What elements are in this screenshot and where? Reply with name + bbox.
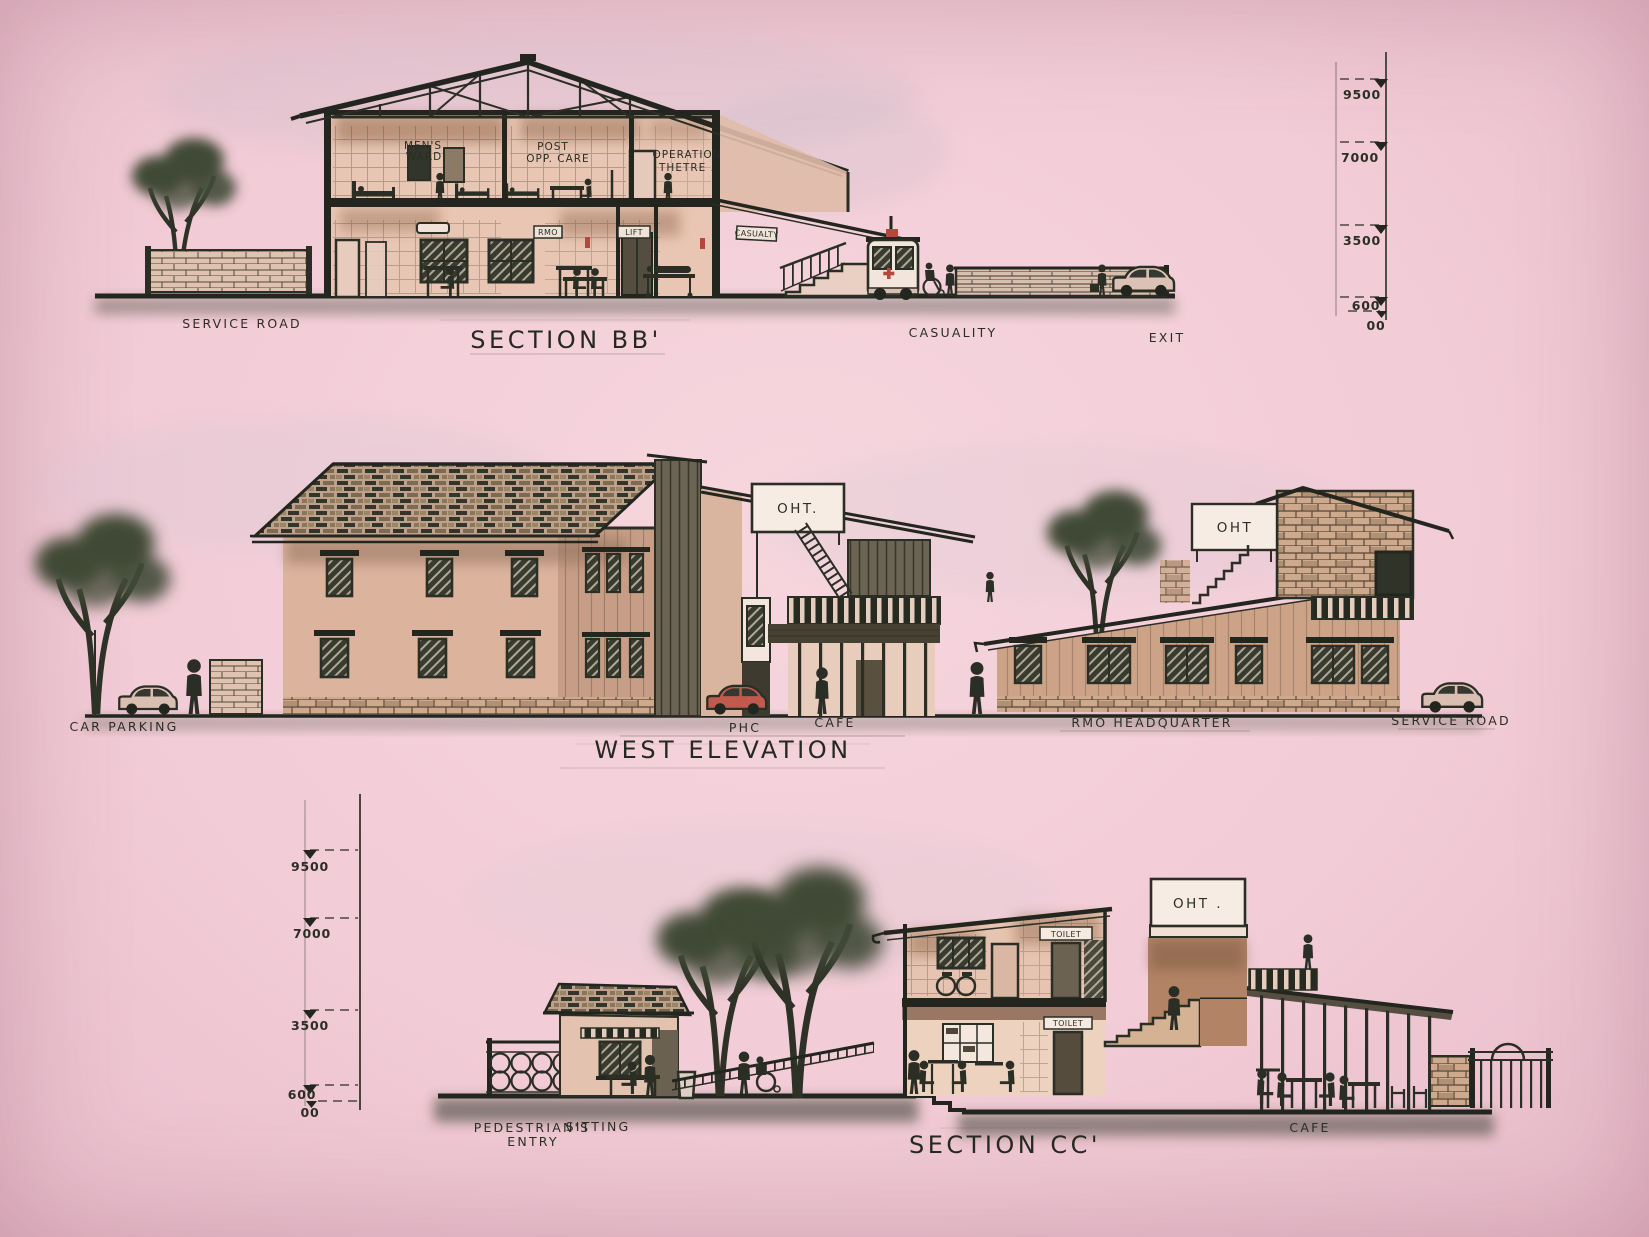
- terrace-railing: [1249, 969, 1317, 990]
- lift-sign-label: LIFT: [625, 228, 643, 237]
- service-road-label: SERVICE ROAD: [1391, 713, 1511, 728]
- rmo-headquarter-label: RMO HEADQUARTER: [1071, 715, 1232, 730]
- wheelchair-patient-group: [924, 263, 955, 296]
- dim-7000: 7000: [1341, 150, 1379, 165]
- cafe-label: CAFE: [1289, 1120, 1330, 1135]
- cc-section-building: TOILET TOILET: [873, 909, 1112, 1096]
- door: [366, 242, 386, 297]
- boundary-fence: [1468, 1044, 1553, 1108]
- cafe-label: CAFE: [814, 715, 855, 730]
- wheel: [874, 288, 886, 300]
- ground-steps: [916, 1096, 966, 1110]
- pedestrians-entry-label-line2: ENTRY: [507, 1134, 558, 1149]
- bench: [563, 277, 607, 281]
- ground-shadow: [95, 298, 1175, 314]
- oht-cc-label: OHT .: [1173, 896, 1223, 912]
- bag: [1090, 284, 1099, 292]
- door: [336, 240, 359, 297]
- post-op-label-line2: OPP. CARE: [526, 153, 589, 165]
- fire-extinguisher: [585, 237, 590, 248]
- plinth: [997, 696, 1400, 712]
- exit-label: EXIT: [1149, 330, 1186, 345]
- casuality-label: CASUALITY: [909, 325, 998, 340]
- toilet-door-upper: [1052, 943, 1080, 998]
- dim-600: 600: [288, 1087, 317, 1102]
- operation-theatre-label-line2: THETRE .: [658, 162, 715, 174]
- balcony-slats: [1312, 597, 1413, 619]
- casualty-signboard: CASUALTY: [734, 226, 778, 241]
- cc-cafe: [1247, 934, 1453, 1110]
- brick-compound-wall: [148, 250, 308, 292]
- dim-7000: 7000: [293, 926, 331, 941]
- mens-ward-label-line2: WARD: [406, 151, 442, 163]
- dim-3500: 3500: [1343, 233, 1381, 248]
- drawing-sheet: RMO LIFT MEN'S WARD POST OPP. CARE OPERA…: [0, 0, 1649, 1237]
- toilet-door-lower: [1054, 1032, 1082, 1094]
- patient-lying: [655, 266, 691, 273]
- wheelchair-wheel: [757, 1073, 775, 1091]
- section-bb-title: SECTION BB': [470, 326, 661, 354]
- upper-window: [938, 938, 984, 968]
- stair-tower: [655, 460, 701, 716]
- walking-person: [970, 662, 985, 714]
- dim-9500: 9500: [1343, 87, 1381, 102]
- person-on-terrace: [1303, 934, 1313, 970]
- accessibility-ramp: [672, 1043, 874, 1094]
- tree: [35, 514, 170, 714]
- hospital-section-building: RMO LIFT MEN'S WARD POST OPP. CARE OPERA…: [324, 110, 722, 298]
- phc-building: [250, 464, 672, 714]
- parked-car: [119, 687, 177, 715]
- table: [928, 1060, 958, 1064]
- dimension-scale-cc: 9500 7000 3500 600 00: [288, 794, 360, 1120]
- service-road-label: SERVICE ROAD: [182, 316, 302, 331]
- ac-unit: [417, 223, 449, 233]
- hut-roof: [545, 984, 690, 1015]
- west-elevation-title: WEST ELEVATION: [594, 736, 851, 764]
- dim-9500: 9500: [291, 859, 329, 874]
- architectural-drawing-canvas: RMO LIFT MEN'S WARD POST OPP. CARE OPERA…: [0, 0, 1649, 1237]
- oht-center-label: OHT.: [777, 501, 819, 517]
- ambulance-beacon: [886, 229, 898, 237]
- cafe-table: [1286, 1078, 1322, 1082]
- car-parking-label: CAR PARKING: [69, 719, 178, 734]
- cafe-colonnade: [788, 643, 935, 716]
- ward-door: [444, 148, 464, 182]
- rmo-sign-label: RMO: [538, 228, 558, 237]
- service-road-car: [1422, 683, 1482, 712]
- section-cc-title: SECTION CC': [909, 1131, 1101, 1159]
- post-op-label-line1: POST: [537, 141, 569, 153]
- caregiver-figure: [738, 1052, 750, 1094]
- ambulance: [866, 229, 920, 300]
- balcony-slats: [788, 597, 940, 624]
- dimension-scale-bb: 9500 7000 3500 600 00: [1336, 52, 1388, 333]
- sitting-label: SITTING: [566, 1119, 631, 1134]
- wheel: [900, 288, 912, 300]
- oht-right-label: OHT: [1217, 520, 1254, 536]
- desk: [550, 186, 584, 190]
- awning: [581, 1028, 659, 1038]
- brick-pillar: [1430, 1056, 1470, 1106]
- dim-3500: 3500: [291, 1018, 329, 1033]
- toilet-lower-label: TOILET: [1052, 1019, 1083, 1028]
- fire-extinguisher: [700, 238, 705, 249]
- oht-terrace: OHT .: [1105, 879, 1247, 1046]
- upper-door: [992, 944, 1018, 998]
- dim-00: 00: [1367, 318, 1386, 333]
- floor-slab: [324, 198, 720, 207]
- desk: [424, 266, 462, 270]
- gurney: [643, 274, 695, 278]
- cafe-table: [1348, 1082, 1380, 1086]
- dark-window: [1376, 552, 1411, 595]
- ambulance-windshield: [873, 247, 891, 269]
- phc-label: PHC: [729, 720, 761, 735]
- dim-00: 00: [301, 1105, 320, 1120]
- operation-theatre-label-line1: OPERATION: [652, 149, 721, 161]
- brick-stack: [210, 660, 262, 714]
- attendant-figure: [946, 264, 955, 296]
- floor-slab: [902, 998, 1106, 1007]
- plinth: [283, 697, 657, 714]
- dim-600: 600: [1352, 298, 1381, 313]
- pedestrian-figure: [186, 659, 202, 714]
- toilet-upper-label: TOILET: [1050, 930, 1081, 939]
